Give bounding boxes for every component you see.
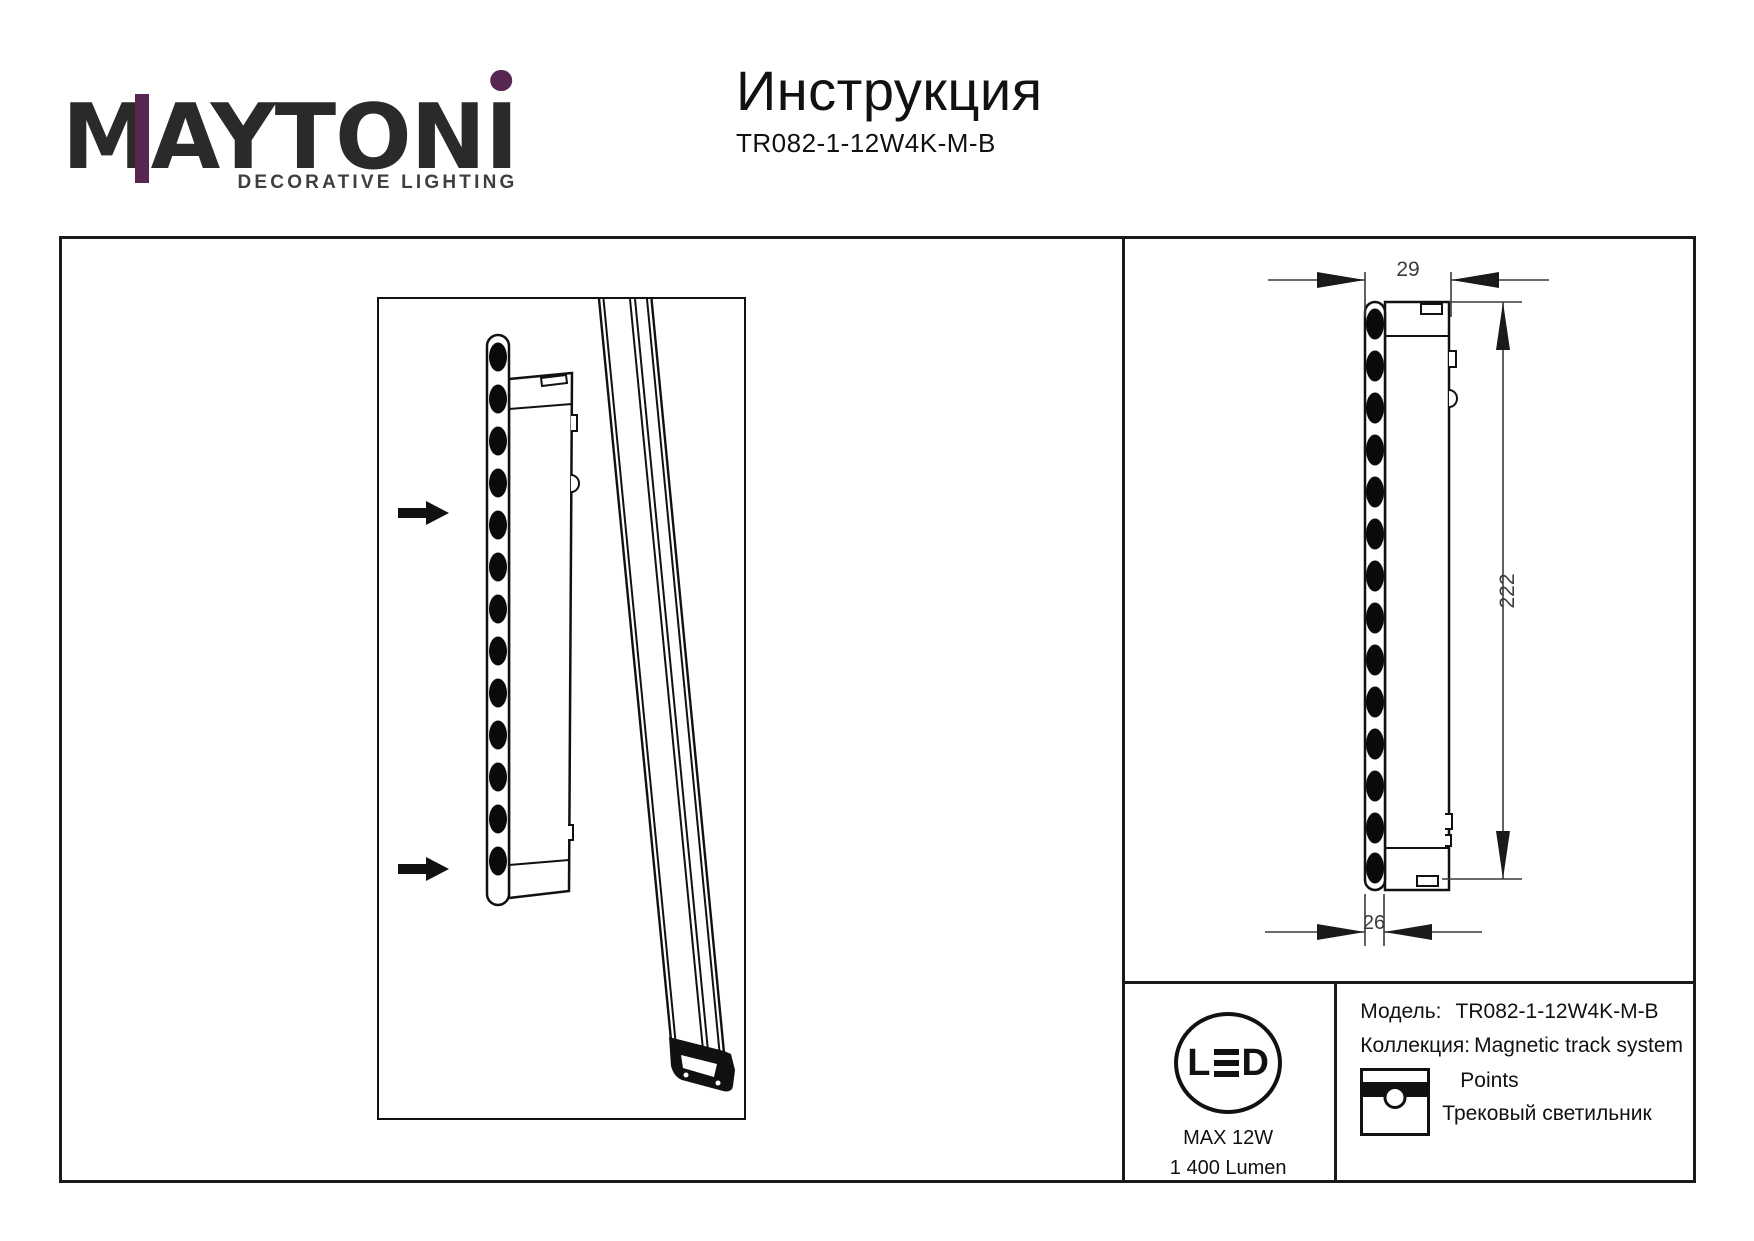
model-row: Модель: TR082-1-12W4K-M-B (1360, 1000, 1683, 1024)
track-light-drawing (487, 335, 579, 905)
mount-clip (1445, 835, 1451, 846)
wordmark-i: I (485, 85, 518, 190)
series-row: Points Трековый светильник (1360, 1068, 1683, 1136)
collection-value: Magnetic track system (1474, 1034, 1683, 1058)
mount-clip (1445, 814, 1452, 829)
led-l: L (1187, 1042, 1210, 1085)
maytoni-logo: MAYTONI DECORATIVE LIGHTING (62, 93, 518, 194)
track-knob (1384, 1086, 1407, 1109)
led-badge-icon: L E D (1174, 1012, 1282, 1114)
led-e-bars-icon: E (1214, 1049, 1239, 1077)
model-label: Модель: (1360, 1000, 1441, 1024)
mount-clip (571, 415, 577, 431)
header-model-code: TR082-1-12W4K-M-B (736, 128, 1043, 159)
max-power-label: MAX 12W (1183, 1127, 1273, 1150)
page-title: Инструкция (736, 62, 1043, 121)
model-spec-cell: Модель: TR082-1-12W4K-M-B Коллекция: Mag… (1337, 984, 1693, 1180)
fixture-side-view (1365, 302, 1457, 890)
insert-direction-arrow-icon (398, 501, 449, 881)
top-notch (1421, 304, 1442, 314)
dimension-26: 26 (1265, 894, 1482, 946)
model-value: TR082-1-12W4K-M-B (1456, 1000, 1659, 1024)
spec-panel: L E D MAX 12W 1 400 Lumen Модель: TR082-… (1122, 981, 1693, 1180)
maytoni-wordmark: MAYTONI (62, 93, 518, 183)
title-block: Инструкция TR082-1-12W4K-M-B (736, 62, 1043, 159)
collection-label: Коллекция: (1360, 1034, 1470, 1058)
latch-knob (571, 475, 579, 492)
dim-depth-bottom-label: 26 (1363, 912, 1385, 934)
instruction-sheet: MAYTONI DECORATIVE LIGHTING Инструкция T… (0, 0, 1754, 1241)
track-symbol-icon (1360, 1068, 1430, 1136)
latch-knob (1449, 390, 1457, 407)
lumen-label: 1 400 Lumen (1170, 1157, 1287, 1180)
led-lens-strip (1365, 302, 1385, 890)
dimension-diagram: 29 222 26 (1125, 239, 1696, 981)
led-d: D (1242, 1042, 1269, 1085)
led-spec-cell: L E D MAX 12W 1 400 Lumen (1122, 984, 1337, 1180)
dimension-222: 222 (1442, 302, 1522, 879)
series-name: Points (1442, 1069, 1651, 1093)
collection-row: Коллекция: Magnetic track system (1360, 1034, 1683, 1058)
mount-clip (568, 825, 573, 840)
bottom-notch (1417, 876, 1438, 886)
mount-clip (1449, 351, 1456, 367)
dim-depth-top-label: 29 (1396, 258, 1419, 281)
dim-height-label: 222 (1496, 573, 1519, 608)
main-frame: 29 222 26 (59, 236, 1696, 1183)
installation-diagram (379, 299, 744, 1118)
track-rail-drawing (599, 299, 735, 1091)
installation-diagram-box (377, 297, 746, 1120)
purple-stroke-accent (135, 94, 149, 183)
product-type: Трековый светильник (1442, 1102, 1651, 1126)
purple-dot-accent (490, 70, 512, 92)
